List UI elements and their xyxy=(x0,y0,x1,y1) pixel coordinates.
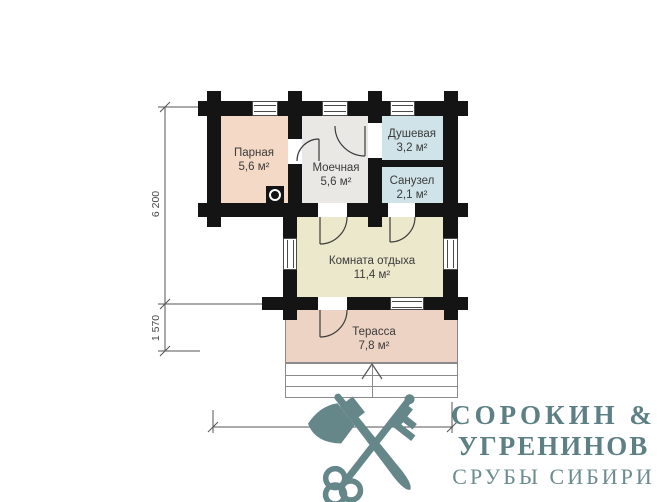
window xyxy=(322,101,348,116)
logo-company-line1: СОРОКИН & xyxy=(444,400,663,431)
room-label-moechnaya: Моечная 5,6 м² xyxy=(312,161,359,189)
room-area: 11,4 м² xyxy=(354,268,390,282)
window-glazing xyxy=(447,240,454,268)
room-area: 5,6 м² xyxy=(239,160,270,174)
log-end xyxy=(444,91,458,101)
room-label-terrassa: Терасса 7,8 м² xyxy=(352,325,395,353)
room-label-komnata: Комната отдыха 11,4 м² xyxy=(329,254,415,282)
dimension-height-label: 6 200 xyxy=(150,191,162,217)
stove-icon xyxy=(266,186,284,204)
log-end xyxy=(207,91,221,101)
entry-steps xyxy=(285,363,458,398)
log-end xyxy=(368,91,382,101)
door-opening-sanuzel-komnata xyxy=(388,203,415,217)
log-end xyxy=(444,310,458,320)
window-glazing xyxy=(324,105,346,112)
room-name: Парная xyxy=(234,146,274,160)
window-glazing xyxy=(287,240,294,268)
room-area: 7,8 м² xyxy=(359,339,390,353)
room-name: Комната отдыха xyxy=(329,254,415,268)
window xyxy=(390,297,424,310)
log-end xyxy=(444,116,458,127)
window xyxy=(443,238,458,270)
logo-company-line2: УГРЕНИНОВ xyxy=(444,431,663,462)
window xyxy=(252,101,278,116)
log-end xyxy=(368,217,382,227)
log-end xyxy=(368,192,382,203)
window xyxy=(390,101,415,116)
key-icon xyxy=(314,385,434,502)
room-name: Терасса xyxy=(352,325,395,339)
door-opening-moechnaya-komnata xyxy=(318,203,347,217)
window-glazing xyxy=(254,105,276,112)
room-area: 2,1 м² xyxy=(397,188,428,202)
log-end xyxy=(288,116,302,127)
door-opening-terrace xyxy=(318,297,347,310)
room-label-dushevaya: Душевая 3,2 м² xyxy=(388,127,436,155)
log-end xyxy=(288,192,302,203)
window-glazing xyxy=(392,105,413,112)
step-divider xyxy=(372,364,373,397)
log-end xyxy=(207,192,221,203)
door-opening-dushevaya xyxy=(368,123,382,158)
log-end xyxy=(207,116,221,127)
room-name: Душевая xyxy=(388,127,436,141)
dimension-terrace-label: 1 570 xyxy=(150,315,162,341)
logo-tagline: СРУБЫ СИБИРИ xyxy=(444,462,663,492)
door-opening-parnaya xyxy=(288,139,302,164)
log-end xyxy=(207,217,221,227)
log-end xyxy=(288,91,302,101)
window xyxy=(283,238,297,270)
floor-plan-page: Парная 5,6 м² Моечная 5,6 м² Душевая 3,2… xyxy=(0,0,667,502)
room-name: Моечная xyxy=(312,161,359,175)
logo-text-block: СОРОКИН & УГРЕНИНОВ СРУБЫ СИБИРИ xyxy=(444,400,663,492)
room-name: Санузел xyxy=(390,174,435,188)
log-end xyxy=(283,310,297,320)
room-area: 3,2 м² xyxy=(397,141,428,155)
room-label-sanuzel: Санузел 2,1 м² xyxy=(390,174,435,202)
stove-ring xyxy=(269,189,281,201)
axe-icon xyxy=(303,387,420,502)
log-end xyxy=(444,217,458,227)
room-label-parnaya: Парная 5,6 м² xyxy=(234,146,274,174)
room-moechnaya-fill xyxy=(302,116,368,203)
room-area: 5,6 м² xyxy=(321,175,352,189)
log-end xyxy=(444,192,458,203)
window-glazing xyxy=(392,301,422,308)
dimension-width-label: 7 500 xyxy=(320,414,346,426)
